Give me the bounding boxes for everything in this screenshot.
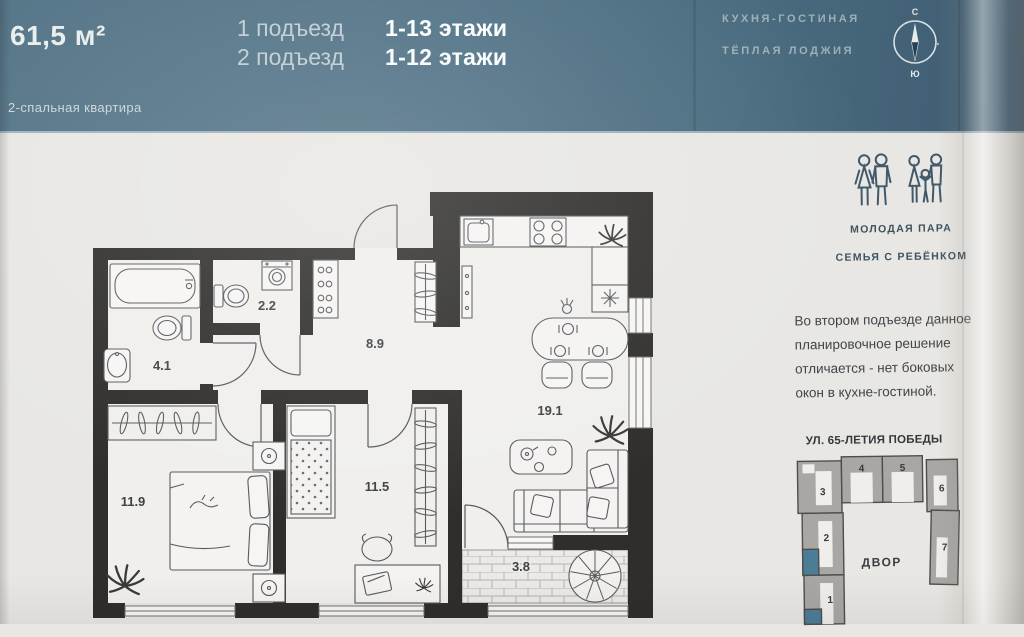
couple-icon	[855, 154, 891, 204]
audience-label-family: СЕМЬЯ С РЕБЁНКОМ	[819, 250, 983, 264]
courtyard-label: ДВОР	[862, 555, 902, 570]
building-number: 5	[900, 463, 906, 474]
family-icon	[909, 154, 942, 201]
street-name: УЛ. 65-ЛЕТИЯ ПОБЕДЫ	[798, 433, 950, 447]
building-number: 4	[859, 464, 865, 475]
planning-note: Во втором подъезде данное планировочное …	[794, 307, 973, 405]
audience-icons	[848, 145, 949, 216]
building-number: 6	[939, 483, 945, 494]
building-number: 7	[942, 542, 948, 553]
building-number: 1	[827, 595, 833, 606]
building-number: 3	[820, 487, 826, 498]
siteplan-map: 3 4 5 6 2 1 7 ДВОР	[792, 453, 969, 625]
building-number: 2	[824, 533, 830, 544]
right-column: МОЛОДАЯ ПАРА СЕМЬЯ С РЕБЁНКОМ Во втором …	[0, 0, 1024, 637]
audience-label-couple: МОЛОДАЯ ПАРА	[835, 222, 967, 236]
brochure-photo: 61,5 м² 2-спальная квартира 1 подъезд1-1…	[0, 0, 1024, 624]
